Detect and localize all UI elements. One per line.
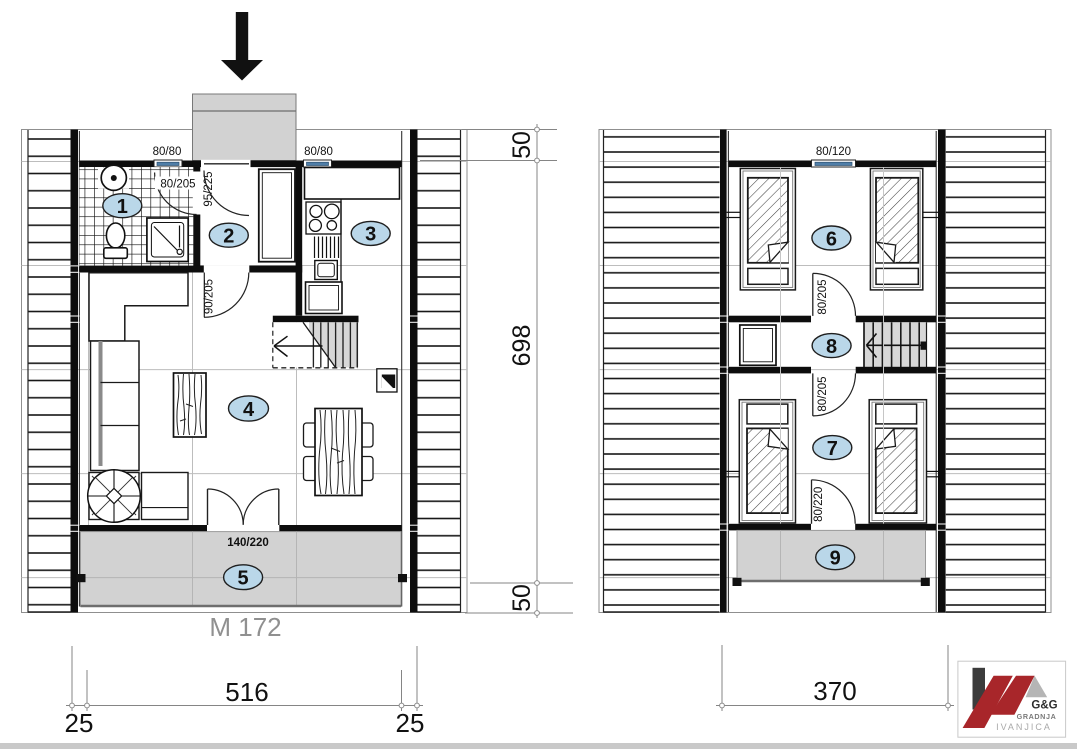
svg-text:IVANJICA: IVANJICA xyxy=(996,722,1052,732)
svg-text:80/120: 80/120 xyxy=(816,146,851,158)
svg-text:90/205: 90/205 xyxy=(204,279,216,314)
svg-text:2: 2 xyxy=(223,226,234,248)
svg-text:1: 1 xyxy=(117,196,128,218)
svg-text:80/80: 80/80 xyxy=(304,146,333,158)
svg-text:80/220: 80/220 xyxy=(813,487,825,522)
svg-text:3: 3 xyxy=(365,224,376,246)
svg-text:370: 370 xyxy=(813,676,856,706)
svg-text:9: 9 xyxy=(830,548,841,570)
svg-text:80/80: 80/80 xyxy=(153,146,182,158)
svg-text:516: 516 xyxy=(225,677,268,707)
svg-text:5: 5 xyxy=(238,568,249,590)
svg-text:8: 8 xyxy=(826,336,837,358)
svg-text:G&G: G&G xyxy=(1031,700,1057,712)
svg-text:50: 50 xyxy=(508,584,536,612)
svg-text:4: 4 xyxy=(243,399,255,421)
svg-text:80/205: 80/205 xyxy=(160,179,195,191)
svg-text:140/220: 140/220 xyxy=(227,537,269,549)
svg-text:25: 25 xyxy=(396,708,425,738)
svg-text:M 172: M 172 xyxy=(209,612,281,642)
svg-text:80/205: 80/205 xyxy=(817,279,829,314)
svg-text:698: 698 xyxy=(508,325,536,367)
svg-text:50: 50 xyxy=(508,131,536,159)
svg-text:7: 7 xyxy=(827,438,838,460)
svg-text:GRADNJA: GRADNJA xyxy=(1017,712,1057,721)
svg-text:25: 25 xyxy=(65,708,94,738)
svg-text:6: 6 xyxy=(826,228,837,250)
svg-text:80/205: 80/205 xyxy=(817,376,829,411)
